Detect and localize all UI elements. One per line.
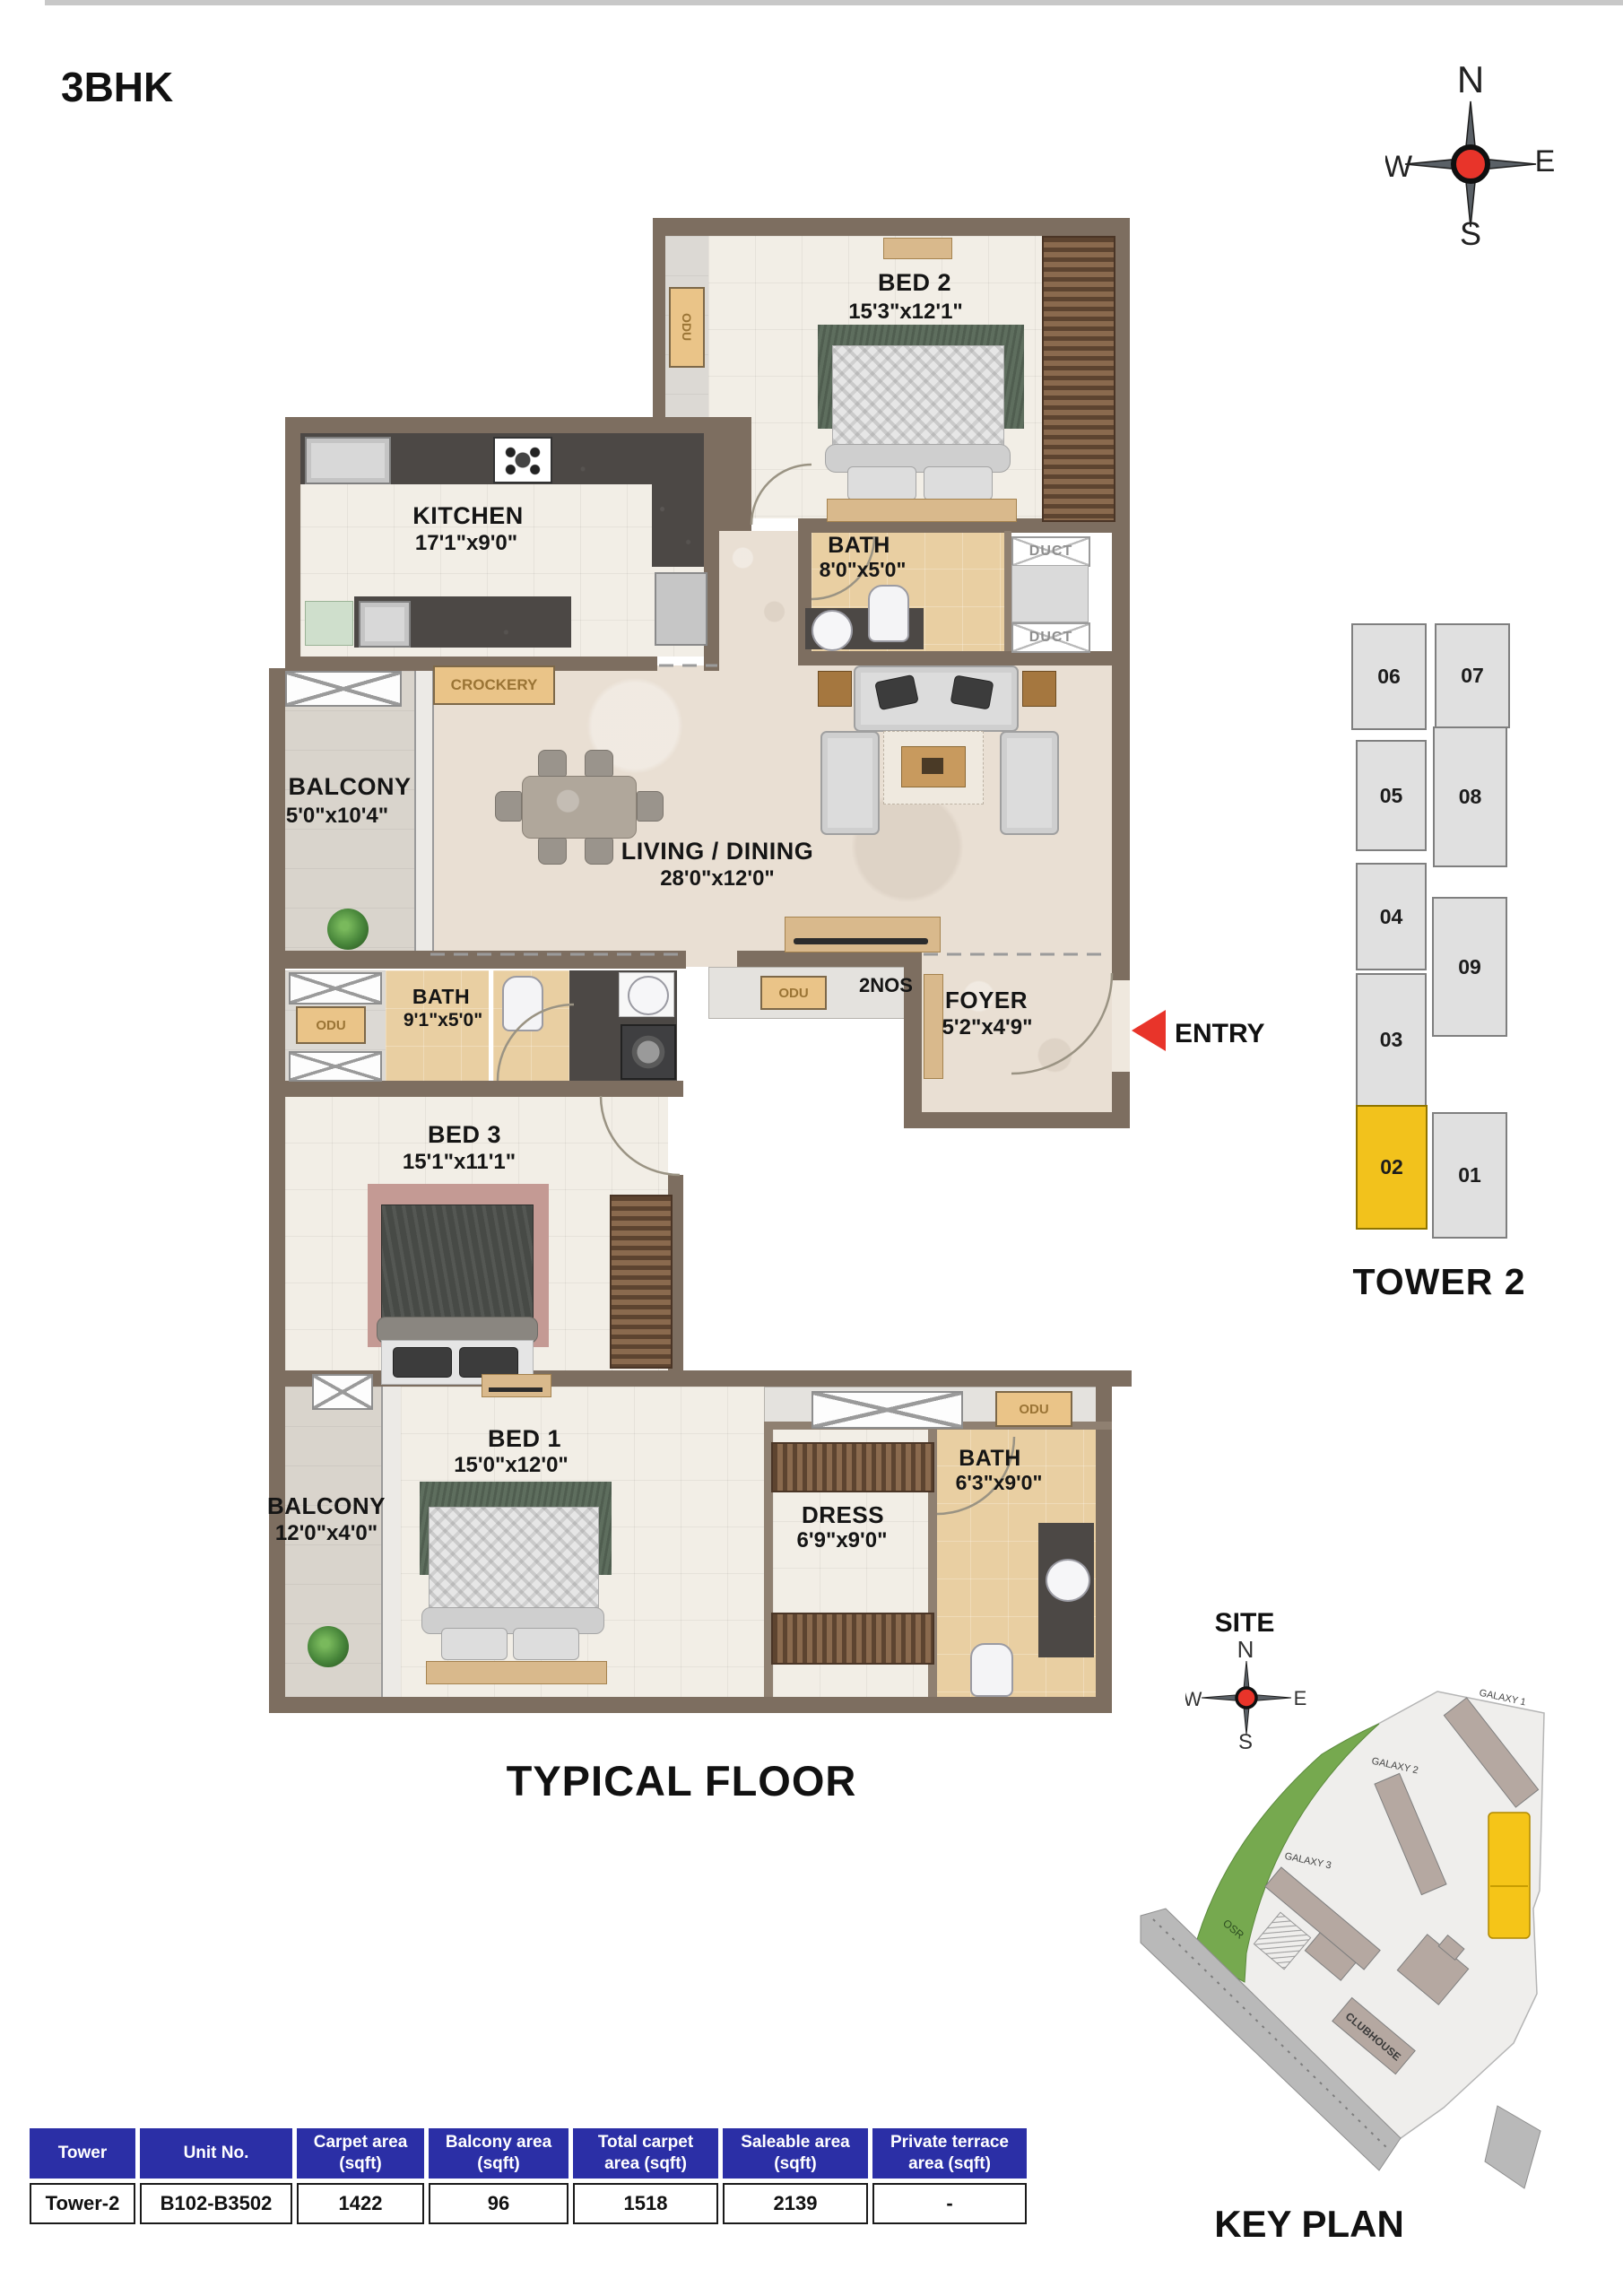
balcony1-window xyxy=(414,668,434,953)
room-label-bed1: BED 1 xyxy=(488,1425,561,1453)
tv-icon xyxy=(794,938,928,944)
wall-segment xyxy=(904,1112,1128,1128)
bath2-basin xyxy=(811,610,853,651)
odu-label: ODU xyxy=(778,986,808,1001)
col-total-carpet: Total carpetarea (sqft) xyxy=(573,2128,718,2179)
kitchen-counter-right xyxy=(652,484,704,567)
louver-window xyxy=(289,972,382,1004)
tower-title: TOWER 2 xyxy=(1352,1261,1525,1303)
dining-chair xyxy=(585,750,613,777)
cell-private-terrace: - xyxy=(872,2183,1027,2224)
fridge xyxy=(655,572,707,646)
tower-unit-04: 04 xyxy=(1356,863,1427,970)
room-dims-bath3: 9'1"x5'0" xyxy=(404,1010,482,1031)
entry-label: ENTRY xyxy=(1175,1019,1265,1049)
keyplan-caption: KEY PLAN xyxy=(1214,2203,1404,2246)
living-tv-unit xyxy=(785,917,941,952)
room-label-kitchen: KITCHEN xyxy=(412,502,524,530)
tower-unit-09: 09 xyxy=(1432,897,1507,1037)
col-carpet-area: Carpet area(sqft) xyxy=(297,2128,424,2179)
bed2-pillow xyxy=(924,466,993,500)
bed2-pillow xyxy=(847,466,916,500)
cell-balcony-area: 96 xyxy=(429,2183,568,2224)
col-balcony-area: Balcony area(sqft) xyxy=(429,2128,568,2179)
room-dims-living: 28'0"x12'0" xyxy=(660,866,775,891)
odu-box-bed2: ODU xyxy=(669,287,705,368)
duct-label: DUCT xyxy=(1029,544,1072,560)
unit-number: 05 xyxy=(1380,784,1403,808)
tower-unit-07: 07 xyxy=(1435,623,1510,728)
dining-chair xyxy=(495,791,522,822)
wall-segment xyxy=(798,651,1128,665)
tower-unit-01: 01 xyxy=(1432,1112,1507,1239)
floorplan-sheet: 3BHK N W E S xyxy=(0,0,1623,2296)
wall-segment xyxy=(1004,531,1011,651)
room-label-dress: DRESS xyxy=(802,1501,884,1529)
building-tower2-highlighted xyxy=(1488,1813,1530,1938)
bed3-duvet xyxy=(381,1205,534,1323)
bed2-bench xyxy=(827,499,1017,522)
coffee-table-tray xyxy=(922,758,943,774)
dining-chair xyxy=(538,838,567,865)
stove-icon xyxy=(493,437,552,483)
wall-segment xyxy=(737,951,904,967)
side-table xyxy=(1022,671,1056,707)
room-label-bath3: BATH xyxy=(412,985,470,1009)
bed1-tv-unit xyxy=(482,1374,551,1397)
unit-number: 06 xyxy=(1377,665,1401,689)
cell-unit-no: B102-B3502 xyxy=(140,2183,292,2224)
wall-segment xyxy=(269,668,285,1713)
entry-threshold xyxy=(1112,980,1130,1072)
room-dims-balcony2: 12'0"x4'0" xyxy=(275,1521,378,1546)
dress-wardrobe-top xyxy=(771,1442,934,1492)
compass-e: E xyxy=(1535,144,1556,178)
room-label-bed3: BED 3 xyxy=(428,1121,501,1149)
room-label-bath2: BATH xyxy=(828,533,890,559)
unit-number: 03 xyxy=(1380,1028,1403,1052)
table-header-row: Tower Unit No. Carpet area(sqft) Balcony… xyxy=(30,2128,1027,2179)
wall-segment xyxy=(269,1697,1112,1713)
room-dims-balcony1: 5'0"x10'4" xyxy=(286,804,388,829)
dress-wardrobe-bottom xyxy=(771,1613,934,1665)
tower-unit-03: 03 xyxy=(1356,973,1427,1107)
crockery-unit: CROCKERY xyxy=(433,665,555,705)
unit-number: 04 xyxy=(1380,905,1403,929)
room-dims-bed2: 15'3"x12'1" xyxy=(848,300,963,325)
cell-tower: Tower-2 xyxy=(30,2183,135,2224)
bed1-pillow xyxy=(513,1628,579,1660)
room-dims-bed1: 15'0"x12'0" xyxy=(454,1453,568,1478)
wall-segment xyxy=(704,417,751,531)
kitchen-sink-2 xyxy=(359,601,411,648)
crockery-label: CROCKERY xyxy=(451,676,538,694)
passage-floor xyxy=(719,531,798,665)
odu-box-bed1: ODU xyxy=(995,1391,1072,1427)
room-dims-bed3: 15'1"x11'1" xyxy=(403,1150,516,1175)
col-private-terrace: Private terracearea (sqft) xyxy=(872,2128,1027,2179)
odu-box-bath3: ODU xyxy=(296,1006,366,1044)
north-compass-icon: N W E S xyxy=(1385,49,1565,256)
bath3-toilet xyxy=(502,976,543,1031)
tower-unit-05: 05 xyxy=(1356,740,1427,851)
kitchen-mat xyxy=(305,601,353,646)
sofa-2seat-right xyxy=(1000,731,1059,835)
road-southeast xyxy=(1485,2106,1541,2188)
room-dims-bath2: 8'0"x5'0" xyxy=(820,558,907,582)
room-label-bed2: BED 2 xyxy=(878,269,951,297)
duct-shaft xyxy=(1011,565,1089,622)
bed1-bench xyxy=(426,1661,607,1684)
wall-segment xyxy=(269,951,686,969)
room-dims-bath1: 6'3"x9'0" xyxy=(956,1471,1043,1495)
unit-number: 09 xyxy=(1458,955,1481,979)
bed2-wardrobe xyxy=(1042,236,1115,522)
room-dims-kitchen: 17'1"x9'0" xyxy=(415,531,517,556)
bed3-wardrobe xyxy=(610,1195,673,1369)
room-label-balcony1: BALCONY xyxy=(289,773,412,801)
site-keyplan-map: CLUBHOUSE GALAXY 1 GALAXY 2 GALAXY 3 OSR xyxy=(1139,1684,1623,2222)
utility-basin xyxy=(628,976,669,1015)
dining-chair xyxy=(637,791,664,822)
plan-caption: TYPICAL FLOOR xyxy=(507,1756,857,1805)
louver-window xyxy=(285,671,402,707)
compass-n: N xyxy=(1457,58,1484,100)
duct-label: DUCT xyxy=(1029,630,1072,646)
col-tower: Tower xyxy=(30,2128,135,2179)
unit-number: 02 xyxy=(1380,1155,1403,1179)
duct-box: DUCT xyxy=(1011,536,1090,567)
compass-s: S xyxy=(1460,215,1481,252)
col-unit-no: Unit No. xyxy=(140,2128,292,2179)
wall-segment xyxy=(1096,1387,1112,1713)
cell-total-carpet: 1518 xyxy=(573,2183,718,2224)
odu-label: ODU xyxy=(316,1018,345,1033)
bath1-toilet xyxy=(970,1643,1013,1697)
odu-label: ODU xyxy=(680,313,694,341)
plant-icon xyxy=(308,1626,349,1667)
room-label-foyer: FOYER xyxy=(945,987,1028,1014)
odu-box-living: ODU xyxy=(760,976,827,1010)
side-table xyxy=(818,671,852,707)
odu-label: ODU xyxy=(1019,1402,1048,1417)
bed1-pillow xyxy=(441,1628,508,1660)
dining-chair xyxy=(538,750,567,777)
wall-segment xyxy=(653,218,1128,236)
bath2-toilet xyxy=(868,585,909,642)
odu-qty-label: 2NOS xyxy=(859,974,913,997)
wall-segment xyxy=(285,417,719,433)
col-saleable-area: Saleable area(sqft) xyxy=(723,2128,868,2179)
table-data-row: Tower-2 B102-B3502 1422 96 1518 2139 - xyxy=(30,2183,1027,2224)
entry-arrow-icon xyxy=(1132,1010,1166,1051)
sofa-2seat-left xyxy=(820,731,880,835)
dining-table xyxy=(522,776,637,839)
washing-machine xyxy=(621,1024,676,1080)
bed3-pillow xyxy=(459,1347,518,1378)
room-dims-foyer: 5'2"x4'9" xyxy=(942,1015,1033,1040)
compass-w: W xyxy=(1385,150,1412,184)
tower-unit-06: 06 xyxy=(1351,623,1427,730)
room-label-balcony2: BALCONY xyxy=(267,1492,386,1520)
unit-number: 01 xyxy=(1458,1163,1481,1187)
room-label-living: LIVING / DINING xyxy=(621,838,814,865)
room-label-bath1: BATH xyxy=(959,1446,1021,1472)
cell-saleable-area: 2139 xyxy=(723,2183,868,2224)
kitchen-sink xyxy=(305,437,391,484)
bed2-tv-unit xyxy=(883,238,952,259)
bed2-duvet xyxy=(832,345,1004,459)
bed3-pillow xyxy=(393,1347,452,1378)
area-table: Tower Unit No. Carpet area(sqft) Balcony… xyxy=(25,2124,1031,2229)
compass-n: N xyxy=(1237,1636,1254,1663)
page-edge xyxy=(45,0,1623,5)
wall-segment xyxy=(285,1081,683,1097)
wall-segment xyxy=(285,417,300,671)
foyer-door-panel xyxy=(924,974,943,1079)
tv-icon xyxy=(489,1387,542,1392)
bath1-basin xyxy=(1046,1559,1090,1602)
cell-carpet-area: 1422 xyxy=(297,2183,424,2224)
dining-chair xyxy=(585,838,613,865)
louver-window xyxy=(312,1374,373,1410)
louver-window xyxy=(811,1391,963,1429)
unit-number: 07 xyxy=(1461,664,1484,688)
tower-unit-02-highlighted: 02 xyxy=(1356,1105,1428,1230)
page-title: 3BHK xyxy=(61,63,173,111)
plant-icon xyxy=(327,909,369,950)
room-dims-dress: 6'9"x9'0" xyxy=(797,1528,888,1553)
unit-number: 08 xyxy=(1459,785,1482,809)
duct-box: DUCT xyxy=(1011,622,1090,653)
louver-window xyxy=(289,1051,382,1082)
tower-unit-08: 08 xyxy=(1433,726,1507,867)
